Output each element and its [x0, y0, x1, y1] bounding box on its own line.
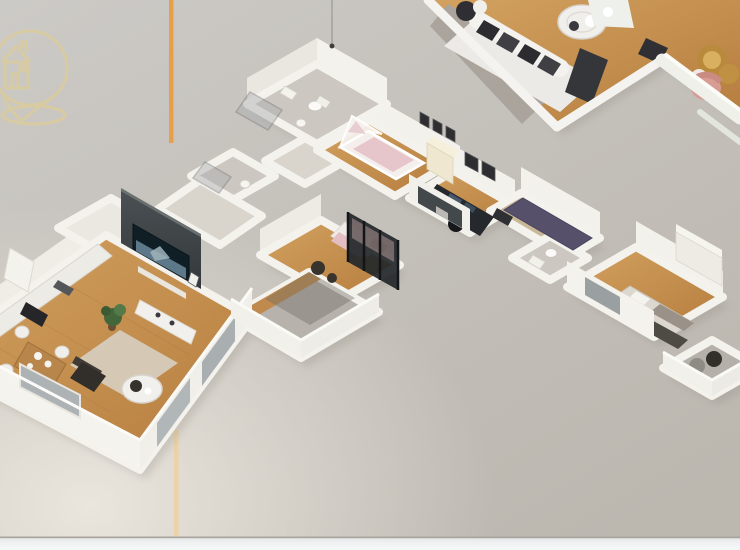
- screenshot-root: { "scene": { "type": "3d-floor-plan-rend…: [0, 0, 740, 550]
- counter-dish: [603, 7, 613, 17]
- washbasin-second: [240, 180, 250, 188]
- terrace-chair: [311, 261, 325, 275]
- bottom-bar-divider: [0, 537, 740, 539]
- toilet-small-bath: [545, 249, 557, 258]
- floor-plan-render: [0, 0, 740, 550]
- accent-line-bottom: [174, 430, 179, 538]
- gold-table-large-top: [703, 51, 721, 69]
- coffee-table: [122, 375, 162, 403]
- terrace-stool: [327, 273, 337, 283]
- gold-table-small: [719, 64, 739, 84]
- bidet: [296, 119, 306, 127]
- floor-plan-stage: [0, 0, 740, 550]
- dining-chair: [15, 326, 29, 338]
- ottoman-white: [473, 0, 487, 14]
- accent-line-top: [169, 0, 174, 143]
- bottom-bar: [0, 538, 740, 550]
- balcony-table: [706, 351, 722, 367]
- dining-chair: [55, 346, 69, 358]
- ottoman-dark: [456, 1, 476, 21]
